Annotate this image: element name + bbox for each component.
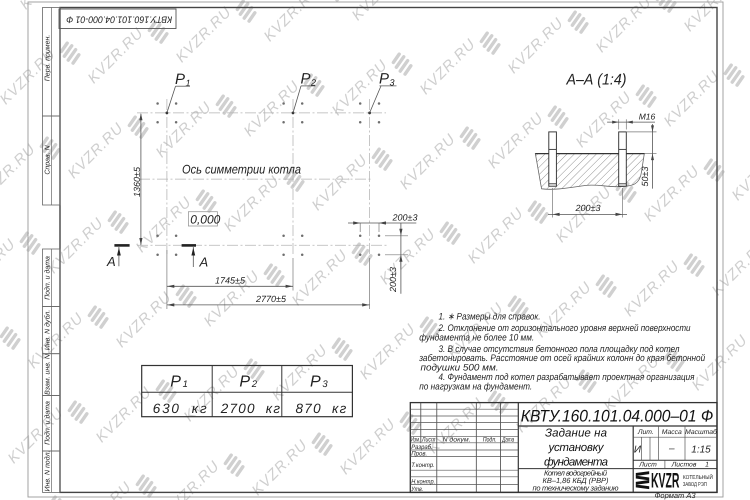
svg-text:Т.контр.: Т.контр. (411, 462, 435, 469)
svg-text:870 кг: 870 кг (296, 401, 348, 416)
svg-text:P: P (175, 71, 185, 88)
svg-text:Лист: Лист (421, 436, 436, 443)
svg-text:А: А (199, 255, 209, 270)
svg-text:0,000: 0,000 (190, 212, 220, 226)
svg-text:1:15: 1:15 (691, 445, 711, 456)
svg-text:200±3: 200±3 (575, 203, 601, 213)
svg-text:А–А (1:4): А–А (1:4) (566, 72, 627, 89)
svg-text:N докум.: N докум. (443, 436, 471, 443)
svg-text:Формат А3: Формат А3 (654, 491, 696, 500)
svg-text:50±3: 50±3 (640, 167, 650, 187)
svg-text:P: P (310, 373, 321, 390)
svg-text:1745±5: 1745±5 (215, 275, 246, 285)
svg-text:P: P (239, 373, 250, 390)
svg-text:KVZR: KVZR (651, 470, 680, 493)
svg-text:ЗАВОД РЭП: ЗАВОД РЭП (683, 482, 707, 488)
svg-text:КОТЕЛЬНЫЙ: КОТЕЛЬНЫЙ (683, 473, 713, 481)
svg-text:Подп. и дата: Подп. и дата (44, 401, 52, 445)
svg-text:Инв. N дубл.: Инв. N дубл. (44, 310, 52, 351)
svg-text:Подп.: Подп. (483, 436, 497, 443)
svg-text:Масса: Масса (662, 429, 682, 436)
svg-text:2770±5: 2770±5 (255, 294, 287, 304)
svg-text:Листов: Листов (671, 462, 697, 469)
svg-text:630 кг: 630 кг (153, 401, 208, 416)
svg-text:КВТУ.160.101.04.000-01 Ф: КВТУ.160.101.04.000-01 Ф (66, 14, 172, 25)
svg-text:по техническому заданию: по техническому заданию (533, 483, 619, 492)
svg-text:Лист: Лист (638, 462, 657, 469)
svg-text:P: P (170, 373, 181, 390)
svg-text:установку: установку (548, 442, 605, 454)
svg-text:фундамента не более 10 мм.: фундамента не более 10 мм. (419, 333, 534, 344)
svg-text:Утв.: Утв. (410, 486, 423, 493)
svg-text:Подп. и дата: Подп. и дата (44, 256, 52, 300)
svg-text:Изм.: Изм. (411, 436, 420, 443)
svg-text:Задание на: Задание на (545, 428, 607, 440)
svg-text:М16: М16 (639, 112, 656, 122)
svg-text:Пров.: Пров. (411, 451, 427, 458)
svg-text:1360±5: 1360±5 (132, 166, 142, 197)
svg-text:–: – (668, 444, 675, 455)
svg-text:А: А (106, 254, 116, 269)
svg-text:КВТУ.160.101.04.000–01 Ф: КВТУ.160.101.04.000–01 Ф (521, 406, 714, 425)
svg-text:2700 кг: 2700 кг (220, 401, 282, 416)
svg-text:по нагрузкам на фундамент.: по нагрузкам на фундамент. (419, 382, 532, 393)
svg-text:фундамента: фундамента (544, 456, 608, 468)
svg-text:P: P (301, 71, 311, 88)
svg-text:Масштаб: Масштаб (685, 429, 718, 436)
svg-text:200±3: 200±3 (388, 267, 398, 293)
svg-text:3: 3 (322, 379, 328, 390)
svg-text:И: И (634, 445, 642, 456)
svg-text:1: 1 (705, 462, 709, 469)
svg-text:2: 2 (251, 379, 258, 390)
svg-text:Дата: Дата (501, 436, 514, 443)
svg-text:1: 1 (183, 379, 188, 390)
svg-text:Взам. инв. N: Взам. инв. N (45, 353, 52, 395)
svg-text:Н.контр.: Н.контр. (411, 479, 435, 486)
svg-text:Лит.: Лит. (637, 429, 654, 436)
svg-text:P: P (379, 71, 389, 88)
svg-text:Инв. N подл.: Инв. N подл. (44, 450, 52, 491)
svg-text:Справ. N: Справ. N (45, 144, 52, 174)
svg-text:Перв. примен.: Перв. примен. (45, 35, 52, 82)
svg-text:200±3: 200±3 (392, 213, 418, 223)
svg-text:1. ∗ Размеры для справок.: 1. ∗ Размеры для справок. (439, 311, 541, 322)
svg-text:Ось симметрии котла: Ось симметрии котла (182, 163, 301, 177)
